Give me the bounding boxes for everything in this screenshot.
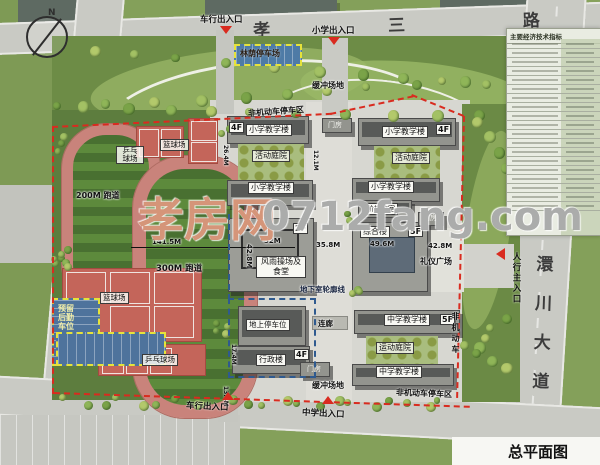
watermark: 孝房网 0712fang.com	[138, 184, 583, 250]
entrance-marker	[322, 396, 334, 404]
floor-tag: 4F	[229, 122, 244, 133]
site-boundary	[52, 126, 54, 394]
activity-courtyard-label: 活动庭院	[392, 152, 430, 164]
basement-outline-label: 地下室轮廓线	[300, 284, 345, 295]
entrance-marker	[328, 37, 340, 45]
pedestrian-entry-paving	[462, 244, 514, 288]
shaded-parking-label: 林荫停车场	[240, 48, 280, 59]
nonmotor-zone-bottom: 非机动车停车区	[396, 387, 452, 400]
tree-icon	[241, 92, 253, 104]
legend-row	[507, 157, 600, 166]
buffer-bottom-label: 缓冲场地	[312, 380, 344, 391]
primary-school-label: 小学教学楼	[382, 126, 428, 138]
legend-row	[507, 58, 600, 67]
middle-school-label: 中学教学楼	[376, 366, 422, 378]
legend-row	[507, 76, 600, 85]
tree-icon	[206, 106, 216, 116]
tree-icon	[84, 401, 93, 410]
tree-icon	[101, 99, 110, 108]
track-300m-label: 300M 跑道	[156, 262, 202, 274]
compass	[26, 16, 68, 58]
legend-row	[507, 85, 600, 94]
tree-icon	[502, 314, 512, 324]
tree-icon	[64, 246, 72, 254]
legend-row	[507, 121, 600, 130]
context-paving	[0, 185, 54, 263]
legend-row	[507, 112, 600, 121]
basketball-top-label: 篮球场	[160, 139, 189, 151]
reserved-parking-label: 预留后勤车位	[58, 304, 78, 331]
legend-row	[507, 130, 600, 139]
buffer-top-label: 缓冲场地	[312, 80, 344, 91]
tree-icon	[55, 148, 61, 154]
corridor-label: 连廊	[318, 318, 333, 329]
tree-icon	[432, 110, 444, 122]
sports-courtyard-label: 运动庭院	[376, 342, 414, 354]
tree-icon	[221, 58, 231, 68]
compass-north-label: N	[48, 8, 56, 18]
basketball-bottom-label: 篮球场	[100, 292, 129, 304]
entrance-top-vehicle: 车行出入口	[200, 13, 243, 25]
ceremony-plaza-label: 礼仪广场	[420, 256, 452, 267]
tree-icon	[398, 73, 409, 84]
tree-icon	[484, 131, 496, 143]
entrance-bottom-middle: 中学出入口	[302, 406, 345, 420]
tree-icon	[388, 110, 400, 122]
entrance-top-primary: 小学出入口	[312, 24, 355, 36]
parking-lot-bottom	[0, 415, 240, 465]
primary-school-label: 小学教学楼	[246, 124, 292, 136]
pingpong-bottom-label: 乒乓球场	[142, 354, 178, 366]
dim-26-4: 26.4M	[222, 145, 229, 166]
tree-icon	[90, 46, 101, 57]
activity-courtyard-label: 活动庭院	[252, 150, 290, 162]
entrance-bottom-vehicle: 车行出入口	[186, 399, 229, 413]
court-lines	[154, 272, 194, 304]
basement-outline	[228, 298, 316, 378]
tree-icon	[494, 147, 506, 159]
tree-icon	[460, 76, 471, 87]
floor-tag: 4F	[436, 124, 451, 135]
plan-caption: 总平面图	[508, 441, 568, 462]
entrance-pedestrian-main: 人行主入口	[510, 252, 522, 305]
driveway-top-vehicle	[216, 30, 234, 114]
nonmotor-side: 非机动车	[450, 312, 461, 356]
entrance-marker	[220, 26, 232, 34]
legend-row	[507, 139, 600, 148]
tree-icon	[78, 101, 90, 113]
legend-row	[507, 166, 600, 175]
tree-icon	[460, 341, 469, 350]
tree-icon	[412, 80, 422, 90]
legend-row	[507, 94, 600, 103]
watermark-brand: 孝房网	[138, 184, 276, 250]
watermark-site: 0712fang.com	[262, 194, 583, 240]
legend-row	[507, 67, 600, 76]
gym-canteen-label: 风雨操场及食堂	[256, 256, 306, 278]
driveway-top-primary	[322, 38, 348, 116]
legend-row	[507, 40, 600, 49]
track-200m-label: 200M 跑道	[76, 190, 119, 201]
compass-needle-icon	[32, 18, 62, 55]
legend-row	[507, 175, 600, 184]
gatehouse-label: 门房	[326, 120, 344, 130]
legend-row	[507, 148, 600, 157]
tree-icon	[58, 140, 65, 147]
pingpong-top-label: 乒乓球场	[116, 146, 144, 164]
site-plan: 孝 三 路 规划路 澴川大道 横 1# 路 200M 跑道 300M 跑道 14…	[0, 0, 600, 465]
tree-icon	[152, 401, 160, 409]
tree-icon	[196, 95, 208, 107]
entrance-marker	[222, 392, 234, 400]
court-lines	[191, 142, 217, 162]
tree-icon	[501, 363, 513, 375]
middle-school-label: 中学教学楼	[384, 314, 430, 326]
tree-icon	[171, 54, 179, 62]
tree-icon	[314, 66, 326, 78]
tree-icon	[244, 400, 253, 409]
legend-row	[507, 103, 600, 112]
tree-icon	[64, 263, 72, 271]
court-lines	[191, 121, 217, 141]
legend-row	[507, 49, 600, 58]
dim-12-1: 12.1M	[312, 150, 319, 171]
